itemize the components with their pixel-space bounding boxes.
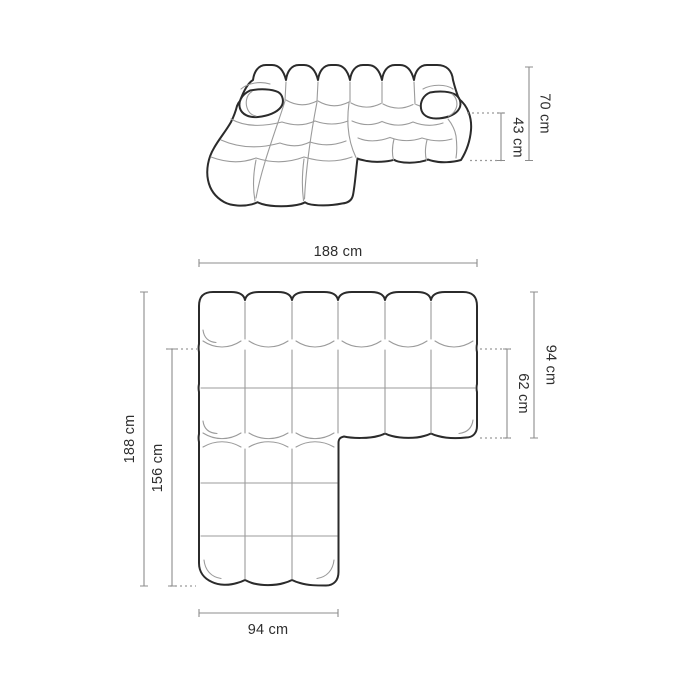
dim-total-width-label: 188 cm — [314, 244, 363, 260]
dim-dotted-connector — [467, 113, 505, 161]
dim-total-height-label: 70 cm — [537, 93, 553, 134]
dim-side-depth: 94 cm — [530, 292, 559, 438]
dim-side-depth-line — [530, 292, 538, 438]
dim-total-depth-label: 188 cm — [122, 415, 138, 464]
diagram-canvas: 70 cm 43 cm 188 cm 188 cm 156 cm — [0, 0, 700, 700]
dim-chaise-length-line — [168, 349, 176, 586]
dim-seat-depth-dotted — [480, 349, 511, 438]
dim-seat-depth-line — [503, 349, 511, 438]
dim-chaise-length-dotted — [166, 349, 197, 586]
dim-side-depth-label: 94 cm — [543, 345, 559, 386]
dim-chaise-length-label: 156 cm — [150, 444, 166, 493]
sofa-plan-drawing — [199, 292, 477, 586]
dim-total-depth-line — [140, 292, 148, 586]
dim-chaise-width: 94 cm — [199, 609, 338, 638]
dim-seat-height: 43 cm — [497, 113, 526, 161]
dim-seat-height-line — [497, 113, 505, 161]
dim-chaise-width-line — [199, 609, 338, 617]
dim-seat-depth: 62 cm — [480, 349, 531, 438]
dim-chaise-width-label: 94 cm — [248, 622, 289, 638]
sofa-perspective-drawing — [207, 65, 471, 206]
dim-chaise-length: 156 cm — [150, 349, 197, 586]
dim-seat-height-label: 43 cm — [510, 117, 526, 158]
sofa-dimension-diagram: 70 cm 43 cm 188 cm 188 cm 156 cm — [0, 0, 700, 700]
dim-total-depth: 188 cm — [122, 292, 148, 586]
dim-total-width-line — [199, 259, 477, 267]
dim-seat-depth-label: 62 cm — [515, 373, 531, 414]
dim-total-width: 188 cm — [199, 244, 477, 267]
